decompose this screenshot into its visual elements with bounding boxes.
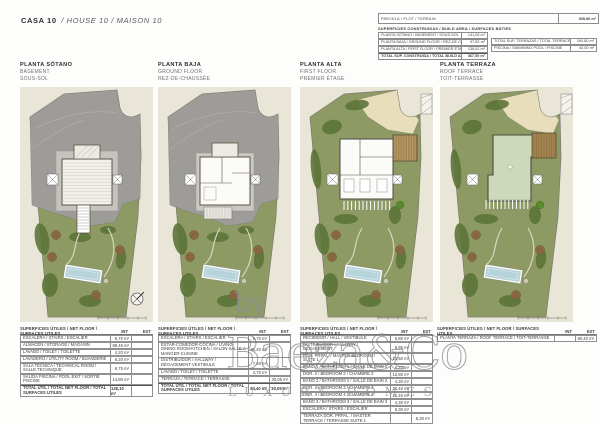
- area-table-cell: TERRAZA / TERRACE / TERRASSE: [159, 377, 248, 382]
- area-table-cell: [411, 372, 432, 378]
- summary-row-value: 160,80 m²: [570, 39, 596, 45]
- bush: [536, 201, 544, 209]
- area-table-cell: 4,70 m²: [248, 370, 269, 376]
- area-table-cell: 30,05 m²: [269, 377, 290, 383]
- area-table-row: DISTRIBUIDOR / HALLWAY / DÉGAGEMENT-VEST…: [158, 357, 291, 369]
- area-table-cell: DOR. 4 / BEDROOM 4 / CHAMBRE 4: [301, 393, 390, 398]
- summary-row-label: PLANTA SÓTANO / BASEMENT / SOUS-SOL: [379, 33, 461, 37]
- area-table-cell: ESCALERA / STAIRS / ESCALIER: [159, 336, 248, 341]
- area-table-cell: ESCALERA / STAIRS / ESCALIER: [301, 407, 390, 412]
- summary-row-value: 367,50 m²: [461, 54, 487, 60]
- area-table-cell: 4,30 m²: [390, 379, 411, 385]
- area-table-cell: 4,20 m²: [110, 350, 131, 356]
- area-table-cell: [554, 336, 575, 342]
- area-table-cell: 84,40 m²: [248, 384, 269, 394]
- area-table-row: DISTRIBUIDOR / HALLWAY / DÉGAGEMENT8,95 …: [300, 342, 433, 354]
- pool-steps: [384, 279, 389, 284]
- area-table-cell: LAVABO / TOILET / TOILETTE: [21, 350, 110, 355]
- page-title-casa: CASA 10: [21, 16, 57, 25]
- area-table-cell: DISTRIBUIDOR / HALLWAY / DÉGAGEMENT: [301, 343, 390, 353]
- plan-subtitle-en-alta: FIRST FLOOR: [300, 69, 433, 75]
- area-table-cell: 65,40 m²: [248, 343, 269, 357]
- area-table-cell: DOR. 2 / BEDROOM 2 / CHAMBRE 2: [301, 372, 390, 377]
- bush: [396, 201, 404, 209]
- area-table-row: TOTAL ÚTIL / TOTAL NET FLOOR / TOTAL SUR…: [20, 385, 153, 397]
- area-table-header-cell: INT: [551, 329, 574, 334]
- page-title-translations: / HOUSE 10 / MAISON 10: [61, 16, 162, 25]
- area-table-cell: 14,80 m²: [110, 375, 131, 385]
- access-hatch: [561, 94, 572, 114]
- site-plan-baja: [158, 87, 291, 322]
- area-table-cell: [411, 407, 432, 413]
- area-table-cell: [411, 393, 432, 399]
- terraces-pool-table: TOTAL SUP. TERRAZAS / TOTAL TERRACES / T…: [491, 38, 597, 52]
- area-table-cell: [411, 354, 432, 364]
- area-table-header-cell: EXT: [410, 329, 433, 334]
- tree: [396, 246, 405, 255]
- area-table-cell: 6,20 m²: [110, 357, 131, 363]
- parcel-bar: PARCELA / PLOT / TERRAIN 935,80 m²: [378, 13, 599, 24]
- summary-row-value: 131,06 m²: [461, 33, 487, 39]
- area-table-cell: 8,95 m²: [390, 343, 411, 353]
- planting-area: [238, 226, 254, 234]
- area-table-cell: 4,30 m²: [390, 400, 411, 406]
- area-table-cell: 6,30 m²: [390, 407, 411, 413]
- area-table-row: TERRAZA DOR. PRPAL. / MASTER TERRACE / T…: [300, 413, 433, 424]
- area-table-sotano: SUPERFICIES ÚTILES / NET FLOOR / SURFACE…: [20, 328, 153, 397]
- site-plan-terraza: [440, 87, 573, 322]
- area-table-cell: 6,70 m²: [248, 336, 269, 342]
- tree: [52, 231, 61, 240]
- summary-row-value: 40,00 m²: [570, 46, 596, 52]
- tree: [186, 253, 195, 262]
- area-table-header-cell: EXT: [268, 329, 291, 334]
- area-table-cell: 12,40 m²: [390, 393, 411, 399]
- area-table-header-cell: INT: [245, 329, 268, 334]
- area-table-header-cell: EXT: [130, 329, 153, 334]
- area-table-cell: [411, 400, 432, 406]
- plan-column-baja: PLANTA BAJA GROUND FLOOR REZ-DE-CHAUSSÉE…: [158, 62, 291, 394]
- plan-subtitle-en-baja: GROUND FLOOR: [158, 69, 291, 75]
- area-table-cell: 12,40 m²: [390, 386, 411, 392]
- area-table-baja: SUPERFICIES ÚTILES / NET FLOOR / SURFACE…: [158, 328, 291, 394]
- plan-subtitle-fr-terraza: TOIT-TERRASSE: [440, 76, 573, 82]
- pool-steps: [104, 279, 109, 284]
- planting-area: [474, 214, 498, 224]
- planting-area: [100, 226, 116, 234]
- area-table-cell: BAÑO 1 / BATHROOM 1 / SALLE DE BAIN 1: [301, 365, 390, 370]
- area-table-cell: [269, 336, 290, 342]
- area-table-cell: BAÑO 3 / BATHROOM 3 / SALLE DE BAIN 3: [301, 400, 390, 405]
- area-table-cell: TERRAZA DOR. PRPAL. / MASTER TERRACE / T…: [301, 414, 390, 424]
- tree: [372, 291, 381, 300]
- tree: [512, 291, 521, 300]
- pool-steps: [242, 279, 247, 284]
- area-table-cell: ESTAR-COMEDOR-COCINA / LIVING-DINING ROO…: [159, 343, 248, 357]
- area-table-cell: ESCALERA / STAIRS / ESCALIER: [21, 336, 110, 341]
- plan-title-sotano: PLANTA SÓTANO: [20, 62, 153, 68]
- area-table-terraza: SUPERFICIES ÚTILES / NET FLOOR / SURFACE…: [437, 328, 597, 342]
- summary-row-value: 138,62 m²: [461, 47, 487, 53]
- summary-row-label: TOTAL SUP. TERRAZAS / TOTAL TERRACES / T…: [492, 39, 570, 43]
- area-table-cell: 18,50 m²: [390, 354, 411, 364]
- tree: [472, 231, 481, 240]
- planting-area: [334, 214, 358, 224]
- area-table-cell: DOR. 3 / BEDROOM 3 / CHAMBRE 3: [301, 386, 390, 391]
- area-table-cell: LAVADERO / UTILITY ROOM / BUANDERIE: [21, 357, 110, 362]
- tree: [48, 253, 57, 262]
- plan-subtitle-fr-baja: REZ-DE-CHAUSSÉE: [158, 76, 291, 82]
- area-table-cell: [411, 386, 432, 392]
- area-table-alta: SUPERFICIES ÚTILES / NET FLOOR / SURFACE…: [300, 328, 433, 424]
- plan-sheet: CASA 10 / HOUSE 10 / MAISON 10 PARCELA /…: [0, 0, 600, 424]
- area-table-row: ESTAR-COMEDOR-COCINA / LIVING-DINING ROO…: [158, 342, 291, 358]
- area-table-cell: PLANTA TERRAZA / ROOF TERRACE / TOIT-TER…: [438, 336, 554, 341]
- area-table-cell: 89,45 m²: [110, 343, 131, 349]
- area-table-cell: SALA TÉCNICA / TECHNICAL ROOM / SALLE TE…: [21, 364, 110, 374]
- pool-steps: [524, 279, 529, 284]
- summary-row-label: PISCINA / SWIMMING POOL / PISCINE: [492, 46, 570, 50]
- area-table-cell: [131, 343, 152, 349]
- summary-row-label: PLANTA BAJA / GROUND FLOOR / REZ-DE-CHAU…: [379, 40, 461, 44]
- planting-area: [207, 232, 229, 242]
- area-table-cell: [248, 377, 269, 383]
- planting-area: [69, 232, 91, 242]
- area-table-cell: [269, 358, 290, 368]
- plan-column-alta: PLANTA ALTA FIRST FLOOR PREMIER ÉTAGE SU…: [300, 62, 433, 424]
- plan-subtitle-fr-sotano: SOUS-SOL: [20, 76, 153, 82]
- plan-subtitle-fr-alta: PREMIER ÉTAGE: [300, 76, 433, 82]
- area-table-cell: 80,40 m²: [575, 336, 596, 342]
- area-table-row: SALA TÉCNICA / TECHNICAL ROOM / SALLE TE…: [20, 363, 153, 375]
- area-table-cell: [411, 343, 432, 353]
- parcel-value: 935,80 m²: [558, 14, 598, 23]
- summary-row: PISCINA / SWIMMING POOL / PISCINE40,00 m…: [491, 45, 597, 53]
- area-table-cell: [131, 350, 152, 356]
- area-table-cell: [411, 336, 432, 342]
- plan-title-terraza: PLANTA TERRAZA: [440, 62, 573, 68]
- area-table-row: TOTAL ÚTIL / TOTAL NET FLOOR / TOTAL SUR…: [158, 383, 291, 395]
- area-table-row: DOR. PRPAL. / MASTER BEDROOM / SUITE 118…: [300, 353, 433, 365]
- area-table-row: PLANTA TERRAZA / ROOF TERRACE / TOIT-TER…: [437, 335, 597, 343]
- tree: [92, 291, 101, 300]
- tree: [468, 253, 477, 262]
- area-table-cell: 6,30 m²: [411, 414, 432, 424]
- area-table-cell: TOTAL ÚTIL / TOTAL NET FLOOR / TOTAL SUR…: [159, 384, 248, 394]
- plan-subtitle-en-sotano: BASEMENT: [20, 69, 153, 75]
- site-plan-sotano: [20, 87, 153, 322]
- area-table-cell: LAVABO / TOILET / TOILETTE: [159, 370, 248, 375]
- area-table-cell: 6,70 m²: [110, 336, 131, 342]
- area-table-cell: 30,05 m²: [269, 384, 290, 394]
- summary-row: TOTAL SUP. CONSTRUIDA / TOTAL BUILD AREA…: [378, 53, 488, 61]
- page-title: CASA 10 / HOUSE 10 / MAISON 10: [21, 16, 162, 25]
- area-table-cell: [131, 375, 152, 385]
- area-table-cell: 6,75 m²: [110, 364, 131, 374]
- area-table-cell: [131, 336, 152, 342]
- area-table-header-cell: EXT: [574, 329, 597, 334]
- area-table-cell: 128,10 m²: [110, 386, 131, 396]
- tree: [536, 246, 545, 255]
- area-table-cell: RECIBIDOR / HALL / VESTIBULE: [301, 336, 390, 341]
- area-table-cell: TOTAL ÚTIL / TOTAL NET FLOOR / TOTAL SUR…: [21, 386, 110, 396]
- summary-row-value: 97,82 m²: [461, 40, 487, 46]
- area-table-header-cell: INT: [107, 329, 130, 334]
- area-table-cell: DOR. PRPAL. / MASTER BEDROOM / SUITE 1: [301, 354, 390, 364]
- plan-subtitle-en-terraza: ROOF TERRACE: [440, 69, 573, 75]
- tree: [190, 231, 199, 240]
- area-table-cell: SALIDA PISCINA / POOL EXIT / SORTIE PISC…: [21, 375, 110, 385]
- tree: [254, 246, 263, 255]
- tree: [332, 231, 341, 240]
- built-areas-label: SUPERFICIES CONSTRUIDAS / BUILD AREA / S…: [378, 26, 511, 31]
- parcel-label: PARCELA / PLOT / TERRAIN: [379, 17, 558, 21]
- area-table-cell: [269, 370, 290, 376]
- building-footprint: [196, 143, 254, 219]
- area-table-cell: [131, 357, 152, 363]
- tree: [328, 253, 337, 262]
- area-table-cell: 5,80 m²: [390, 336, 411, 342]
- area-table-cell: [411, 379, 432, 385]
- area-table-cell: [390, 414, 411, 424]
- tree: [230, 291, 239, 300]
- site-plan-alta: [300, 87, 433, 322]
- area-table-header-cell: INT: [387, 329, 410, 334]
- area-table-cell: [411, 365, 432, 371]
- area-table-cell: BAÑO 2 / BATHROOM 2 / SALLE DE BAIN 2: [301, 379, 390, 384]
- area-table-cell: 12,80 m²: [390, 372, 411, 378]
- summary-row-label: PLANTA ALTA / FIRST FLOOR / PREMIER ÉTAG…: [379, 47, 461, 51]
- summary-row-label: TOTAL SUP. CONSTRUIDA / TOTAL BUILD AREA…: [379, 54, 461, 58]
- area-table-cell: 5,20 m²: [390, 365, 411, 371]
- area-table-cell: [131, 386, 152, 396]
- area-table-row: SALIDA PISCINA / POOL EXIT / SORTIE PISC…: [20, 374, 153, 386]
- tree: [116, 246, 125, 255]
- plan-title-alta: PLANTA ALTA: [300, 62, 433, 68]
- area-table-cell: [269, 343, 290, 357]
- area-table-cell: 7,60 m²: [248, 358, 269, 368]
- area-table-cell: ALMACÉN / STORAGE / MAGASIN: [21, 343, 110, 348]
- plan-column-sotano: PLANTA SÓTANO BASEMENT SOUS-SOL SUPERFIC…: [20, 62, 153, 397]
- plan-column-terraza: PLANTA TERRAZA ROOF TERRACE TOIT-TERRASS…: [440, 62, 573, 342]
- access-hatch: [421, 94, 432, 114]
- area-table-cell: [131, 364, 152, 374]
- built-areas-table: PLANTA SÓTANO / BASEMENT / SOUS-SOL131,0…: [378, 32, 488, 60]
- plan-title-baja: PLANTA BAJA: [158, 62, 291, 68]
- area-table-cell: DISTRIBUIDOR / HALLWAY / DÉGAGEMENT-VEST…: [159, 358, 248, 368]
